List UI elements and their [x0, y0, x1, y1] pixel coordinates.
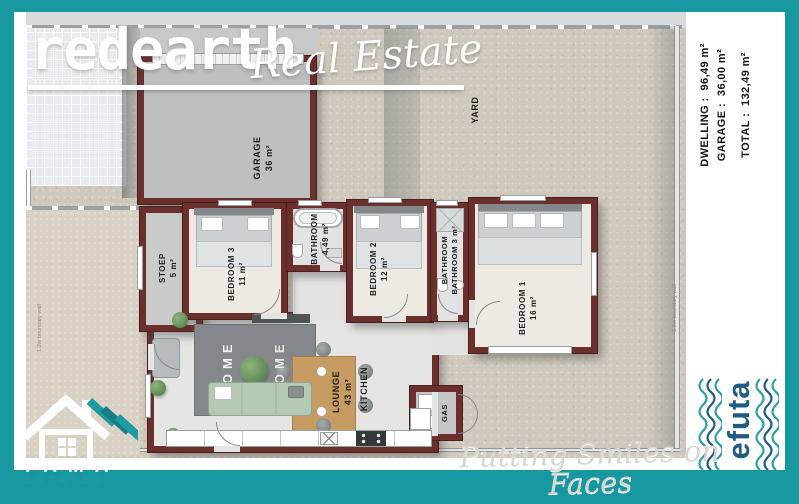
right-boundary-shadow	[648, 26, 674, 452]
sofa-pillow-gray	[288, 386, 304, 398]
bedroom3-label: BEDROOM 311 m²	[227, 247, 249, 301]
stat-total: TOTAL : 132,49 m²	[738, 15, 755, 195]
door-arc-yard	[458, 394, 478, 414]
tagline-script: Putting Smiles on Faces	[419, 436, 760, 503]
window	[436, 200, 458, 206]
door-gap	[261, 313, 287, 319]
bed1-pillow	[540, 213, 564, 228]
bed3-pillow	[247, 217, 269, 231]
bathroom-label: BATHROOM4,49 m²	[310, 213, 332, 264]
bed1-headboard	[478, 204, 582, 211]
window	[591, 252, 597, 296]
toilet	[292, 244, 303, 258]
door-gap	[438, 315, 458, 321]
stat-dwelling: DWELLING : 96,49 m²	[697, 15, 714, 195]
kitchen-label: KITCHEN	[358, 367, 370, 411]
bed1-pillow	[484, 213, 508, 228]
door-gap	[432, 392, 438, 436]
bed2-pillow	[400, 215, 420, 229]
rug-plant	[240, 356, 268, 384]
plant	[150, 380, 166, 396]
dining-chair	[316, 342, 331, 357]
kitchen-counter	[166, 430, 432, 447]
bed3-pillow	[201, 217, 223, 231]
stat-garage: GARAGE : 36,00 m²	[714, 15, 731, 195]
bathroom2-label: BATHROOM BATHROOM 3 m²	[440, 226, 460, 295]
tama-estates-logo: TAMA ESTATES	[16, 380, 138, 489]
bed3-headboard	[194, 208, 274, 215]
stoep-label: STOEP5 m²	[158, 253, 180, 283]
area-stats: DWELLING : 96,49 m² GARAGE : 36,00 m² TO…	[697, 15, 767, 195]
sofa-pillow	[214, 386, 232, 400]
window	[145, 374, 151, 418]
house-icon	[28, 398, 138, 464]
door-gap	[320, 265, 340, 271]
estates-wordmark: ESTATES	[24, 474, 106, 484]
right-boundary-wall	[674, 26, 680, 452]
bed1-duvet	[478, 237, 582, 265]
boundary-wall-note-right: 1.2m boundary wall	[672, 284, 678, 332]
door-gap	[214, 446, 240, 452]
brand-underline	[28, 85, 464, 90]
window	[500, 195, 546, 201]
door-gap	[148, 344, 154, 370]
window	[368, 197, 402, 203]
bed2-pillow	[360, 215, 380, 229]
door-arc-yard	[458, 414, 478, 434]
door-gap	[469, 300, 475, 328]
kitchen-sink	[320, 432, 338, 445]
plate	[316, 366, 327, 377]
fridge	[410, 408, 431, 430]
bedroom1-label: BEDROOM 116 m²	[518, 281, 540, 335]
plant	[172, 312, 188, 328]
gas-label: GAS	[440, 404, 450, 422]
window	[218, 200, 252, 206]
bed1-pillow	[512, 213, 536, 228]
window	[137, 246, 143, 290]
window	[488, 346, 572, 354]
garage-label: GARAGE36 m²	[251, 136, 275, 179]
bed2-headboard	[354, 206, 424, 213]
boundary-wall-note-left: 1.2m boundary wall	[37, 304, 43, 352]
window	[298, 200, 322, 206]
lounge-label: LOUNGE43 m²	[330, 371, 354, 413]
bedroom2-label: BEDROOM 212 m²	[369, 242, 391, 296]
stove	[356, 431, 386, 446]
plate	[316, 406, 327, 417]
yard-label: YARD	[469, 96, 481, 123]
